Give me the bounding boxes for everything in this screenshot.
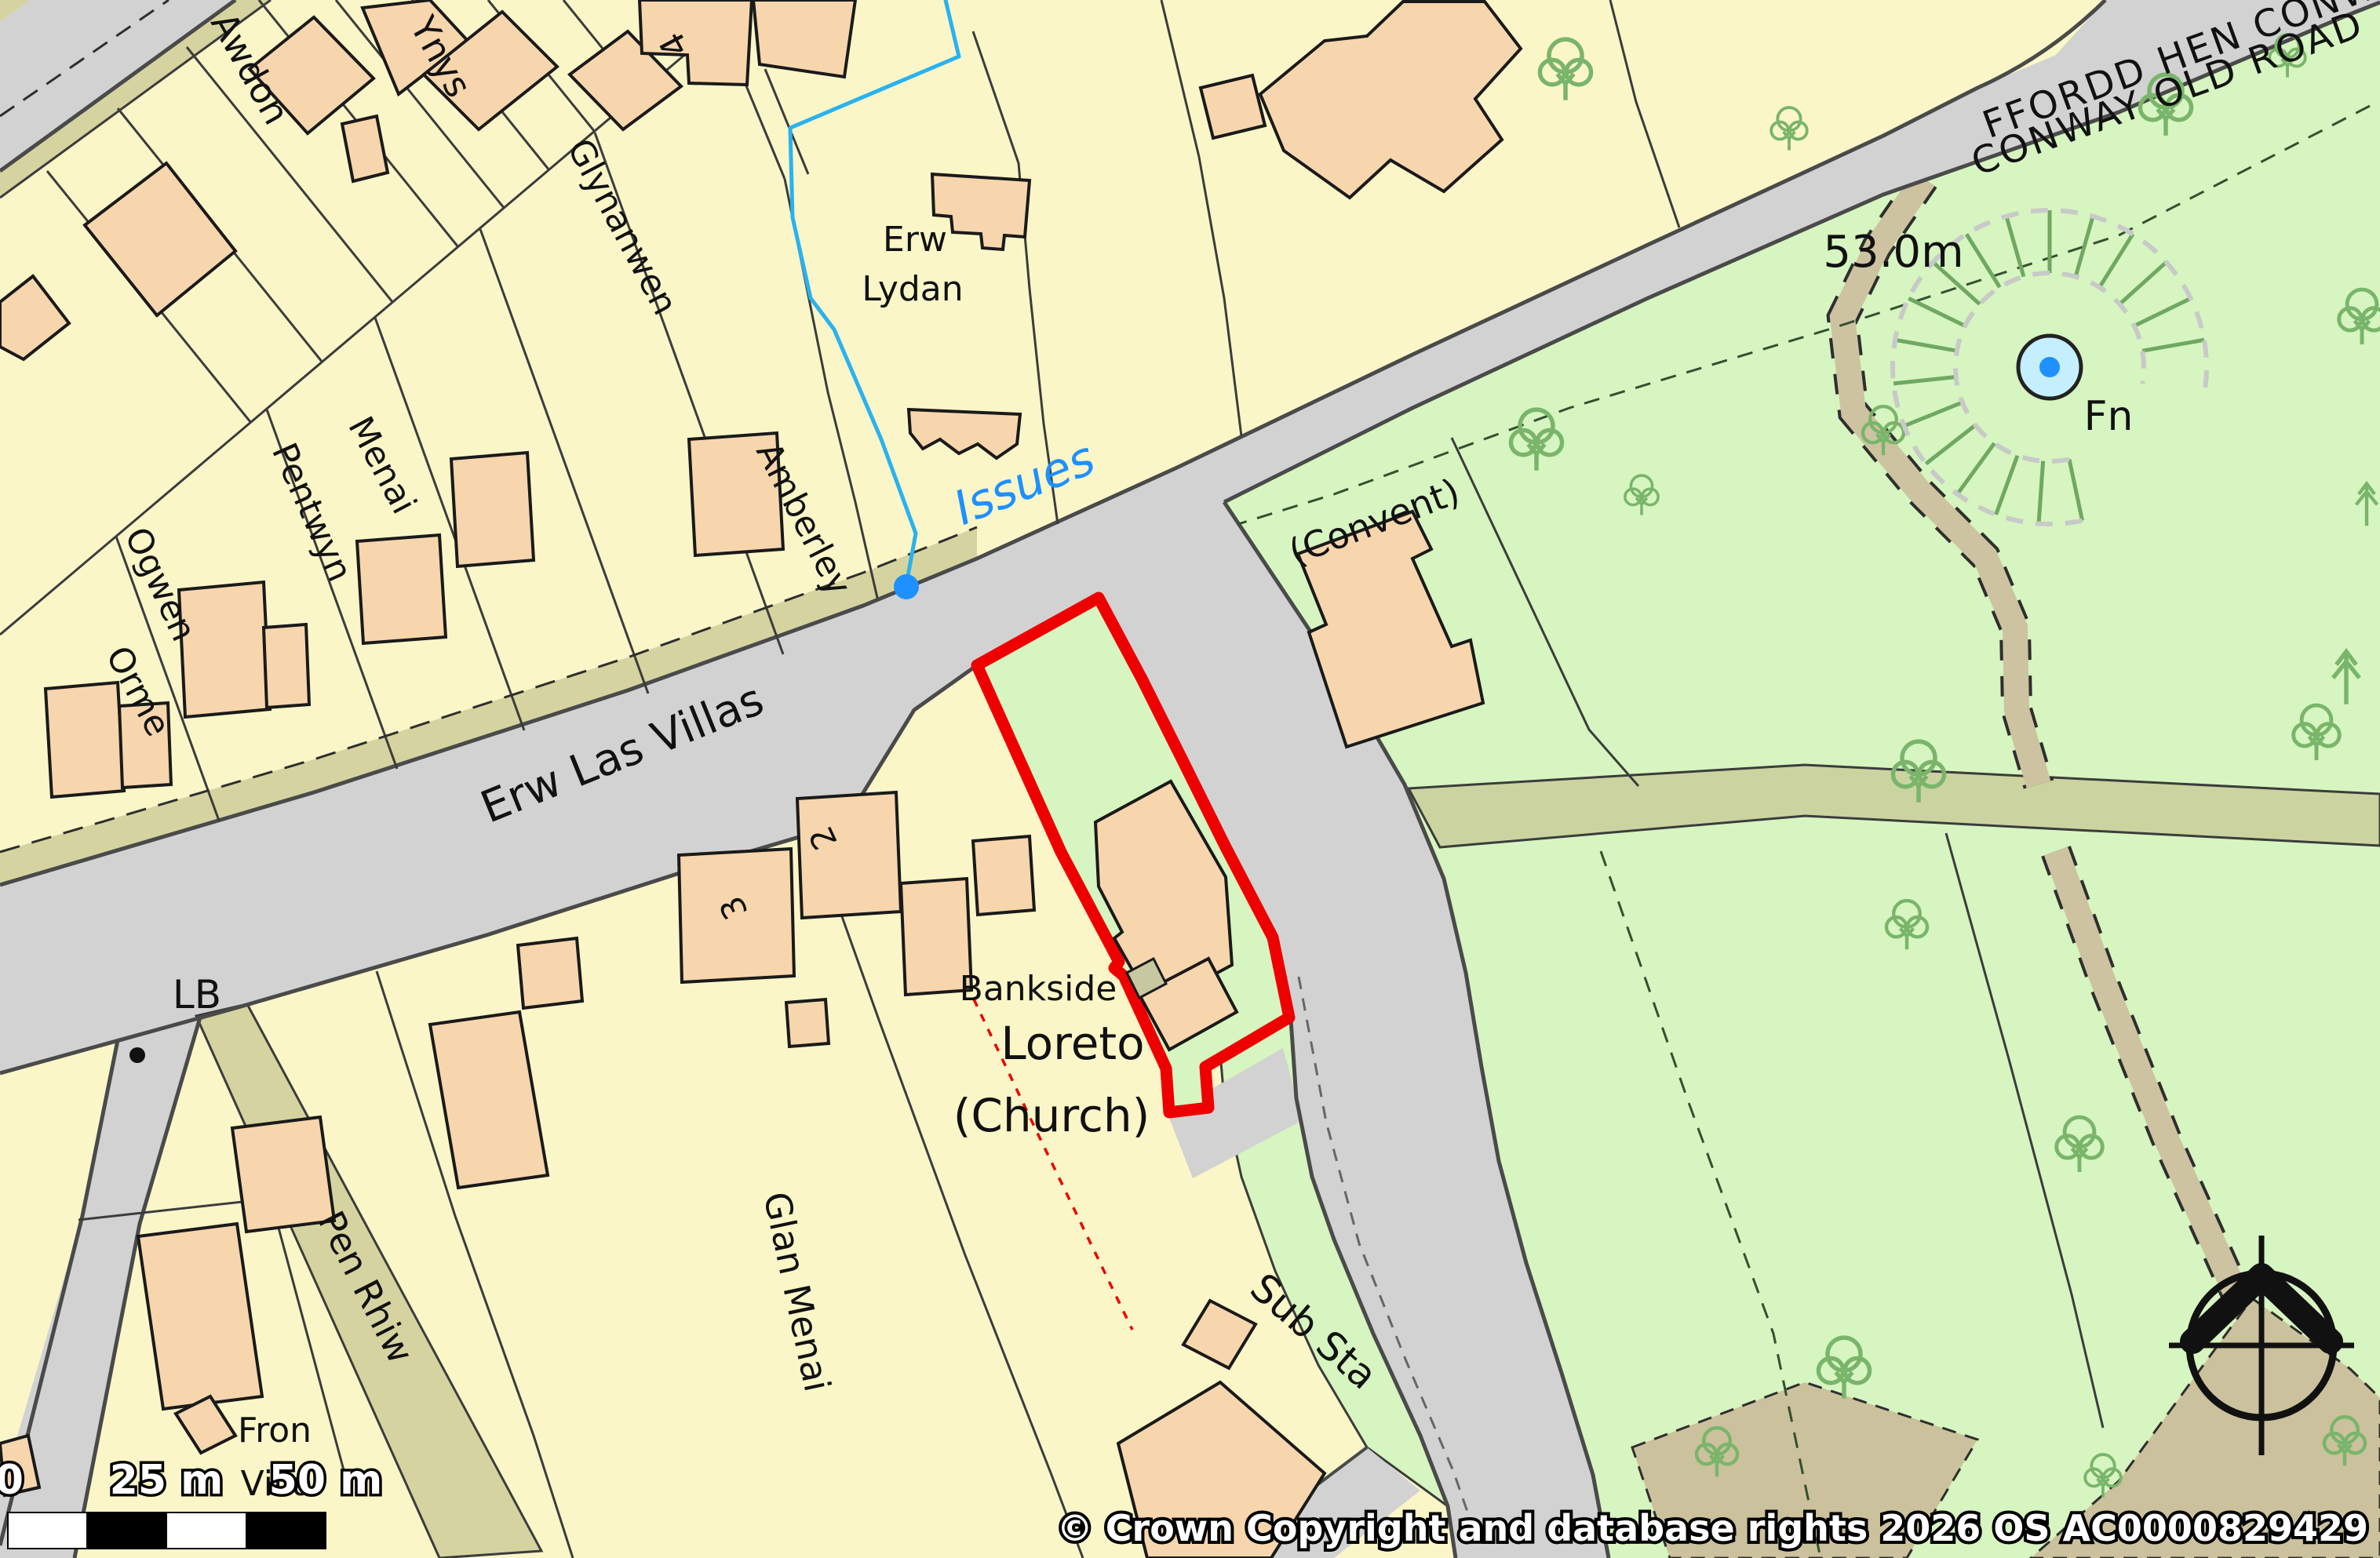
label-erw: Erw xyxy=(883,220,947,260)
fountain-dot xyxy=(2039,357,2060,377)
building xyxy=(973,836,1034,915)
label-lb: LB xyxy=(173,972,221,1017)
scale-bar-segment xyxy=(166,1512,246,1549)
building xyxy=(451,453,534,566)
scale-label: 25 m xyxy=(110,1457,224,1504)
building xyxy=(1201,75,1265,138)
building xyxy=(518,938,582,1008)
label-bankside: Bankside xyxy=(960,969,1117,1009)
label-fn: Fn xyxy=(2084,393,2134,440)
building xyxy=(232,1117,334,1232)
scale-label: 50 m xyxy=(269,1457,383,1504)
label-lydan: Lydan xyxy=(862,269,963,309)
copyright: © Crown Copyright and database rights 20… xyxy=(1057,1507,2368,1549)
label-church: (Church) xyxy=(953,1089,1150,1142)
scale-bar-segment xyxy=(246,1512,326,1549)
scale-bar-segment xyxy=(87,1512,166,1549)
building xyxy=(357,535,446,643)
copyright-text: © Crown Copyright and database rights 20… xyxy=(1057,1507,2368,1549)
label-fron: Fron xyxy=(238,1411,312,1451)
label-spot-height: 53.0m xyxy=(1823,227,1963,278)
building xyxy=(786,999,829,1047)
scale-label: 0 xyxy=(0,1457,24,1504)
building xyxy=(179,582,270,717)
scale-bar-segment xyxy=(8,1512,87,1549)
map-canvas: AwdonYnysGlynanwenMenaiPentwynOgwenOrmeA… xyxy=(0,0,2380,1558)
building xyxy=(264,624,309,708)
building xyxy=(753,0,855,77)
label-loreto: Loreto xyxy=(1000,1017,1144,1070)
building xyxy=(46,683,124,797)
os-map: AwdonYnysGlynanwenMenaiPentwynOgwenOrmeA… xyxy=(0,0,2380,1558)
lb-dot xyxy=(129,1047,145,1063)
stream-end-dot xyxy=(894,574,919,599)
